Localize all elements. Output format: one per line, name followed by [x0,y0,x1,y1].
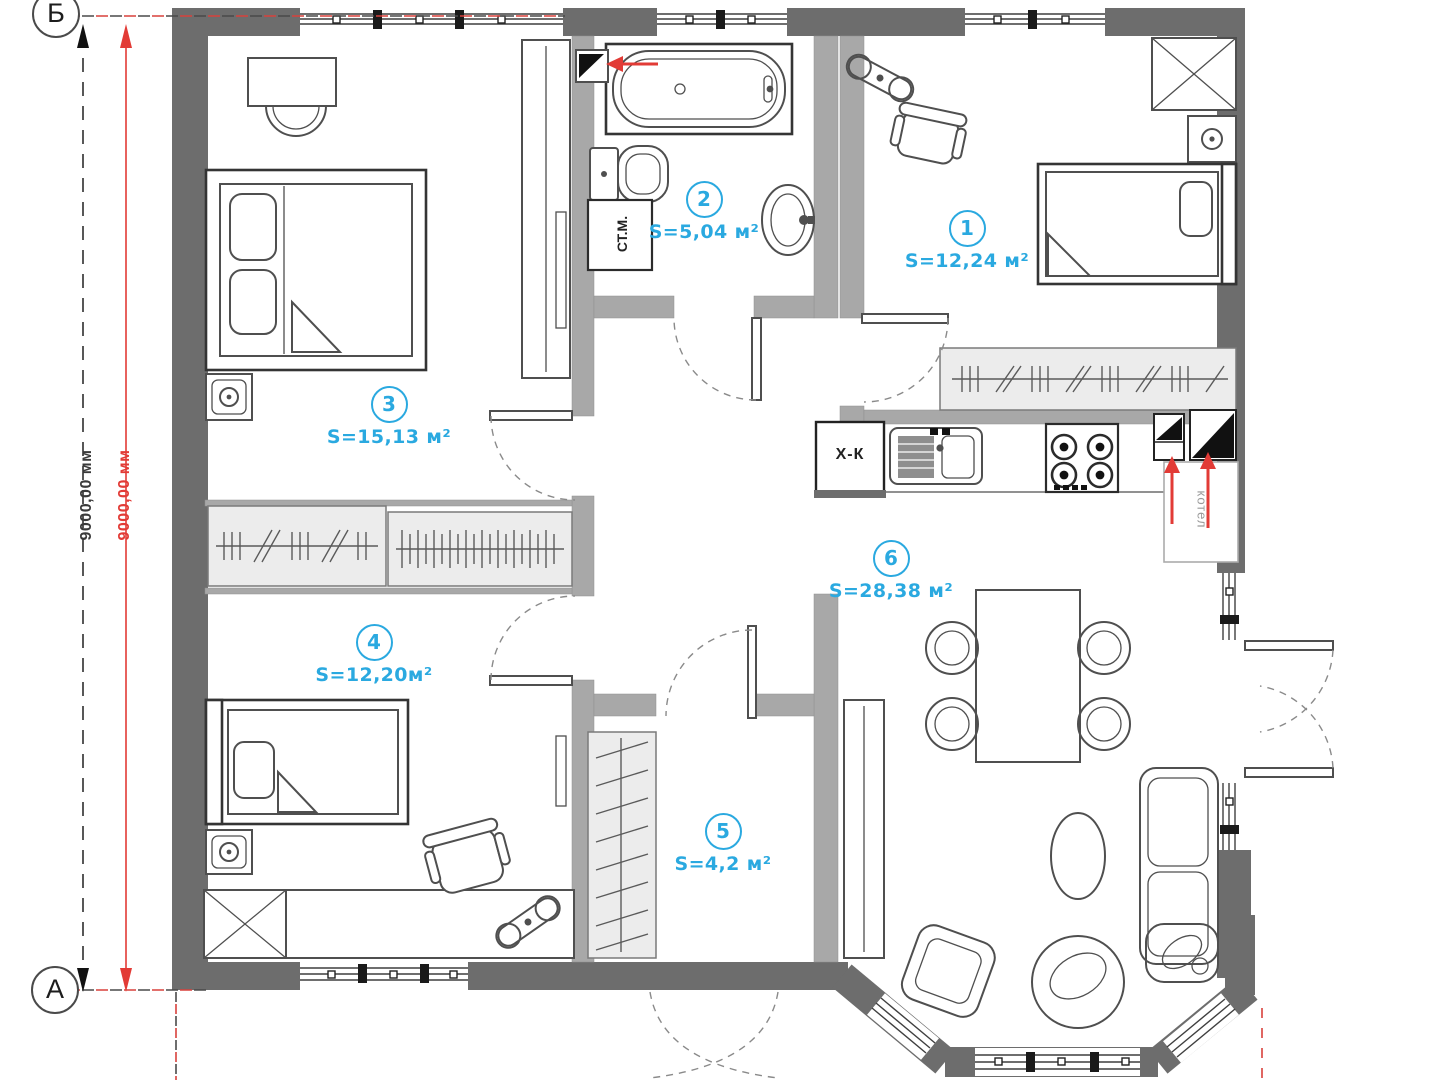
radiator-room4 [556,736,566,806]
door-room5 [666,626,756,718]
window-top-middle [657,8,787,36]
closet-x-room1 [1152,38,1236,110]
speaker-room4 [206,830,252,874]
window-top-right [965,8,1105,36]
wardrobe-hall-right [388,512,572,586]
door-entry-dashed [650,992,778,1078]
dimension-label-black: 9000,00 мм [78,430,98,560]
armchair-round [1032,936,1124,1028]
window-right-lower [1217,783,1245,850]
lounge-chair-bay [1146,924,1218,982]
window-bay-left [872,998,935,1053]
shelving-room5 [588,732,656,958]
desk-room4 [204,890,574,958]
double-bed [206,170,426,370]
single-bed-room4 [206,700,408,824]
boiler-label: котел [1195,469,1210,551]
window-bay-bottom [975,1052,1140,1072]
bathroom-fixtures [576,44,815,270]
wardrobe-tall-room3 [522,40,570,378]
door-room3 [490,411,575,500]
door-bathroom [674,318,761,400]
bathtub [606,44,792,134]
vent-shaft-bathroom [576,50,608,82]
sofa [1140,768,1218,964]
nightstand-speaker-room1 [1188,116,1236,162]
wardrobe-room1 [940,348,1236,410]
single-bed-room1 [1038,164,1236,284]
floor-plan-canvas: Б А 9000,00 мм 9000,00 мм 1 S=12,24 м² 2… [0,0,1440,1080]
window-top-left [300,8,563,36]
desk-chair-room4 [420,817,514,898]
kitchen [814,410,1238,562]
cabinet-tall-room6 [844,700,884,958]
room4-furniture [204,700,574,958]
vent-shaft-large [1190,410,1236,460]
speaker-room3 [206,374,252,420]
door-room1 [862,314,948,402]
door-french-right [1245,641,1333,777]
oval-coffee-table [1051,813,1105,899]
window-right-upper [1217,573,1245,640]
wardrobe-hall-left [208,506,386,586]
vent-shaft-small [1154,414,1184,460]
room6-furniture [844,590,1218,1028]
washing-machine-label: СТ.М. [614,194,630,274]
dimension-label-red: 9000,00 мм [116,430,136,560]
vanity-with-mirror [248,58,336,136]
armchair-square [897,921,999,1022]
kitchen-sink [890,428,982,484]
desk-chair-room1 [888,101,969,167]
room3-furniture [206,40,570,420]
dining-table [976,590,1080,762]
fridge-label: Х-К [816,446,884,464]
door-room4 [490,596,575,685]
floor-plan-drawing [0,0,1440,1080]
bathroom-sink [762,185,815,255]
stove [1046,424,1118,492]
axis-marker-bottom: А [31,966,79,1014]
window-bottom-left [300,962,468,990]
